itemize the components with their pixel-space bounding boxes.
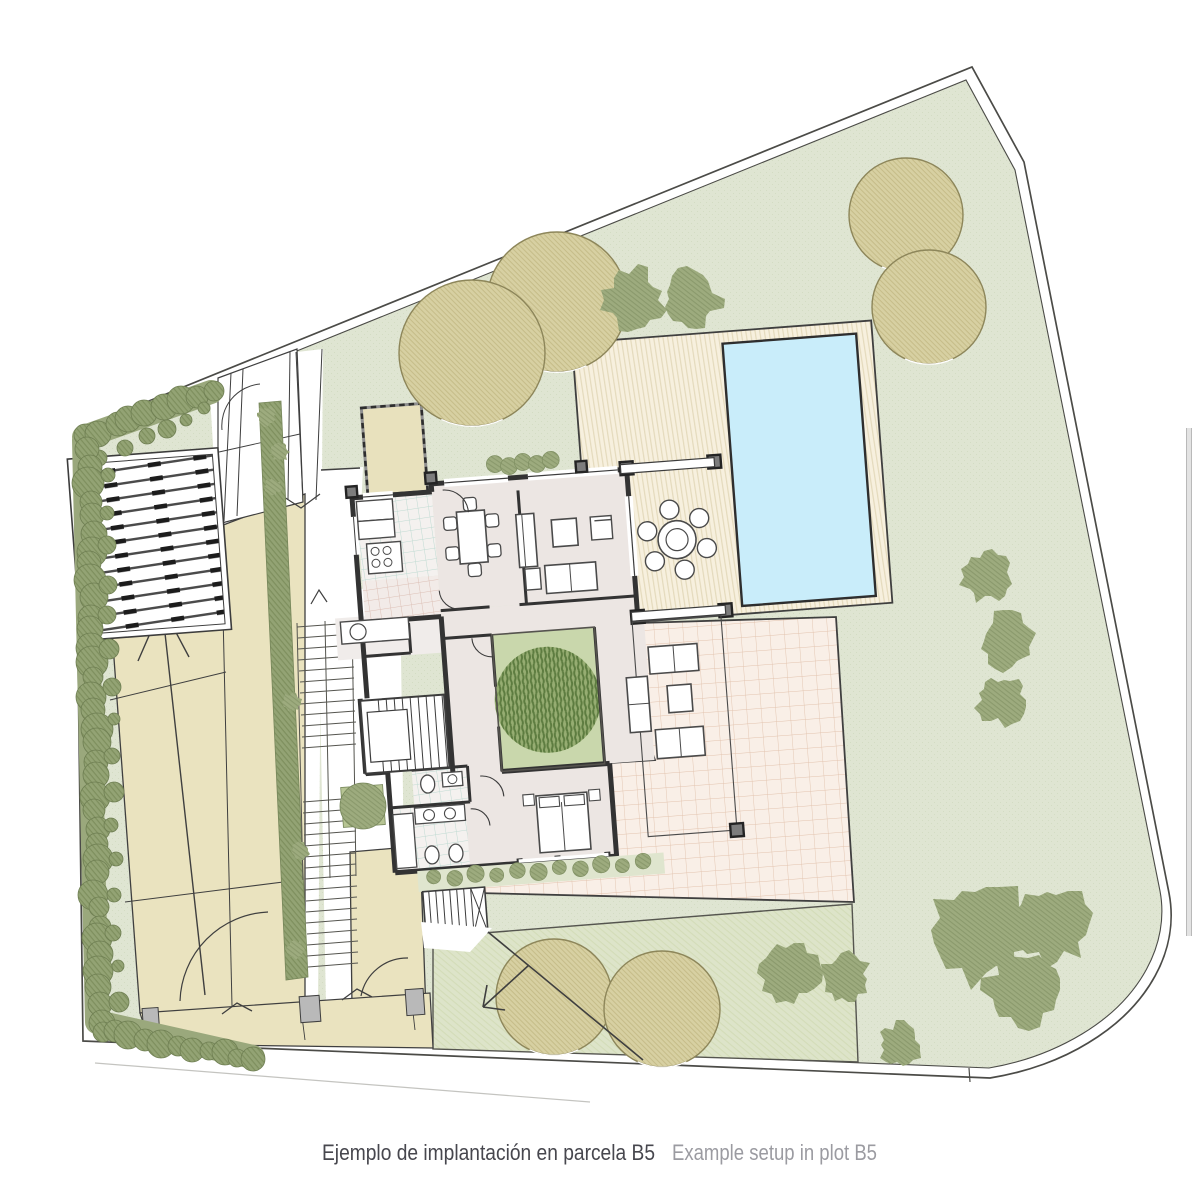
svg-text:Ejemplo de implantación en par: Ejemplo de implantación en parcela B5: [322, 1140, 655, 1165]
svg-text:Example setup in plot B5: Example setup in plot B5: [672, 1140, 877, 1165]
